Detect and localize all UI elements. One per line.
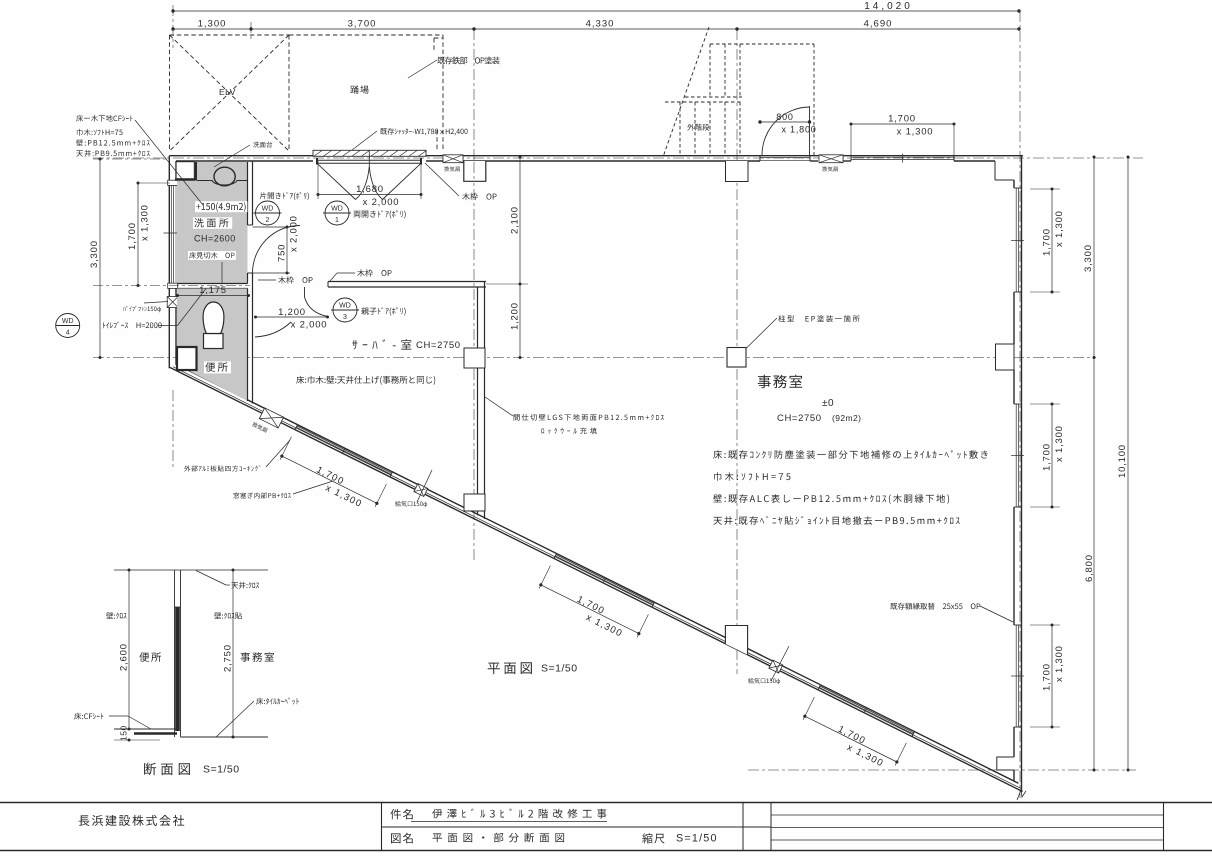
svg-text:1,300: 1,300 [198, 19, 227, 30]
svg-text:S=1/50: S=1/50 [676, 833, 718, 845]
svg-text:1,700: 1,700 [888, 114, 916, 125]
svg-text:1,200: 1,200 [510, 302, 521, 330]
svg-text:1,700: 1,700 [1042, 443, 1053, 471]
svg-text:6,800: 6,800 [1084, 554, 1095, 582]
svg-text:CH=2750: CH=2750 [777, 413, 822, 424]
svg-text:WD: WD [339, 303, 351, 310]
svg-text:14,020: 14,020 [864, 1, 913, 12]
svg-text:x 1,300: x 1,300 [1054, 425, 1065, 462]
svg-text:x 1,300: x 1,300 [1054, 645, 1065, 682]
svg-text:1: 1 [335, 217, 339, 224]
svg-text:CH=2600: CH=2600 [194, 234, 236, 244]
svg-text:1,700: 1,700 [1042, 228, 1053, 256]
svg-text:x 2,000: x 2,000 [363, 197, 400, 208]
svg-text:1,175: 1,175 [199, 285, 227, 296]
svg-text:x 1,300: x 1,300 [897, 127, 934, 138]
svg-text:1,700: 1,700 [127, 222, 138, 250]
svg-text:x 2,000: x 2,000 [291, 320, 328, 331]
svg-text:S=1/50: S=1/50 [541, 663, 578, 675]
svg-text:800: 800 [776, 112, 793, 122]
svg-text:4: 4 [66, 330, 70, 337]
svg-text:1,200: 1,200 [278, 307, 306, 318]
svg-text:WD: WD [331, 206, 343, 213]
svg-text:x 1,300: x 1,300 [140, 204, 151, 241]
svg-text:ELV: ELV [219, 87, 236, 97]
svg-text:WD: WD [262, 206, 274, 213]
svg-text:3,300: 3,300 [89, 240, 100, 268]
svg-text:1,700: 1,700 [1042, 663, 1053, 691]
svg-text:2,750: 2,750 [223, 644, 234, 672]
svg-text:1,680: 1,680 [356, 184, 384, 195]
svg-text:±0: ±0 [822, 398, 834, 409]
svg-text:150: 150 [119, 725, 129, 741]
svg-text:(92m2): (92m2) [832, 413, 861, 423]
svg-text:4,330: 4,330 [586, 19, 615, 30]
svg-text:3,300: 3,300 [1083, 244, 1094, 272]
svg-text:750: 750 [277, 244, 288, 262]
svg-text:10,100: 10,100 [1117, 444, 1128, 478]
svg-text:x 2,000: x 2,000 [289, 215, 300, 252]
svg-text:2,600: 2,600 [119, 643, 130, 671]
svg-text:x 1,300: x 1,300 [1054, 210, 1065, 247]
svg-text:4,690: 4,690 [864, 19, 893, 30]
svg-text:CH=2750: CH=2750 [416, 340, 461, 351]
svg-text:3: 3 [343, 314, 347, 321]
svg-text:3,700: 3,700 [348, 19, 377, 30]
svg-text:2: 2 [266, 217, 270, 224]
svg-text:x 1,800: x 1,800 [781, 125, 816, 135]
svg-text:2,100: 2,100 [510, 206, 521, 234]
svg-text:WD: WD [62, 318, 74, 325]
svg-text:S=1/50: S=1/50 [203, 764, 240, 776]
